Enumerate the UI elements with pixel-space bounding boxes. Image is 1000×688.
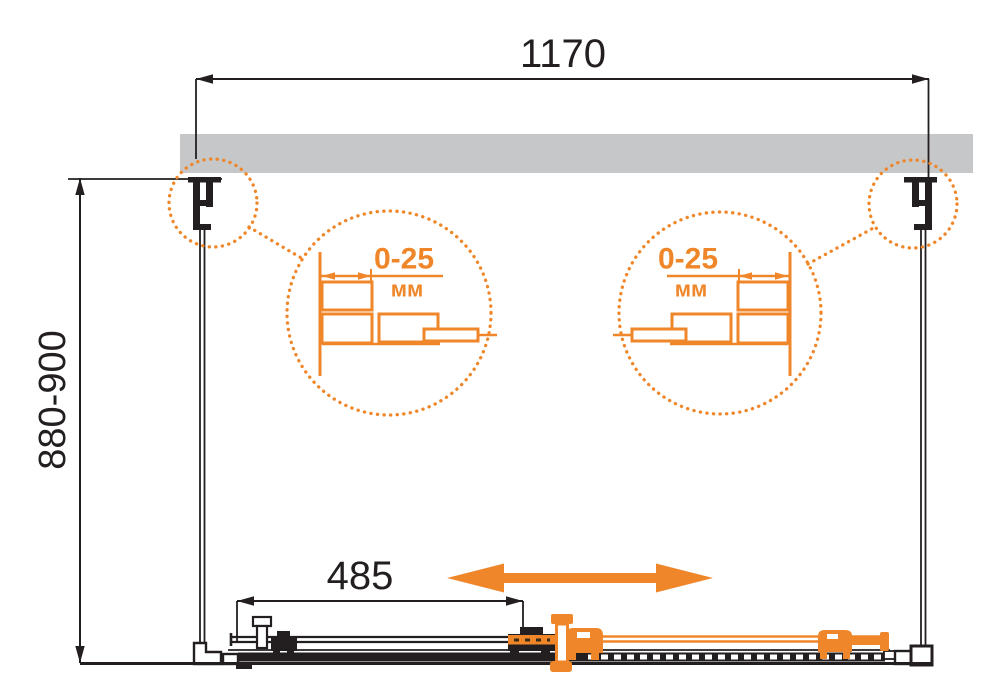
roller-body: [271, 637, 297, 651]
door-handle-stem: [557, 624, 568, 662]
profile-rung: [912, 200, 932, 206]
profile-foot: [914, 224, 928, 230]
profile-foot: [197, 224, 211, 230]
detail-drawing-right: 0-25 мм: [613, 243, 790, 377]
roller-wheel: [820, 652, 827, 659]
arrowhead-left-icon: [196, 74, 213, 83]
arrowhead-right-icon: [912, 74, 929, 83]
adjustment-range-label: 0-25: [374, 243, 434, 276]
detail-callout-right: 0-25 мм: [613, 160, 957, 414]
fixing-knob-stem: [257, 626, 267, 648]
arrow-shaft: [500, 573, 660, 583]
roller-detail: [827, 634, 838, 639]
arrowhead-right-icon: [656, 564, 713, 593]
wall-bar: [180, 134, 973, 173]
roller-wheel: [591, 653, 599, 660]
profile-tongue: [424, 329, 478, 341]
dimension-door-travel-label: 485: [327, 554, 394, 598]
plan-view-drawing: 1170 880-900 485: [0, 0, 1000, 688]
roller-wheel: [568, 653, 576, 660]
slide-direction-arrow: [447, 564, 713, 593]
bottom-track: [80, 643, 932, 669]
profile-flange: [904, 177, 937, 183]
track-end-step: [884, 651, 895, 659]
roller-body: [818, 630, 852, 652]
detail-drawing-left: 0-25 мм: [320, 243, 497, 377]
arrowhead-left-icon: [739, 272, 752, 279]
corner-bracket-left: [194, 643, 221, 664]
arrowhead-down-icon: [75, 646, 84, 663]
callout-connector: [808, 226, 877, 264]
dimension-height: 880-900: [32, 178, 222, 663]
profile-section-box: [322, 314, 372, 343]
roller-wheel: [843, 652, 850, 659]
unit-label: мм: [675, 277, 708, 302]
detail-callout-left: 0-25 мм: [169, 159, 497, 415]
arrowhead-left-icon: [322, 272, 335, 279]
roller-detail: [577, 632, 590, 638]
arrowhead-up-icon: [75, 178, 84, 195]
roller-bump: [520, 627, 543, 634]
arrowhead-right-icon: [775, 272, 788, 279]
profile-rung: [193, 200, 213, 206]
adjustment-range-label: 0-25: [658, 243, 718, 276]
profile-section-box: [322, 282, 372, 310]
roller-arm: [588, 636, 602, 646]
shower-enclosure-installation-drawing: 1170 880-900 485: [0, 0, 1000, 688]
track-bar: [238, 653, 585, 662]
profile-flange: [188, 177, 221, 183]
profile-tongue: [632, 329, 686, 341]
dimension-height-label: 880-900: [32, 330, 74, 469]
fixing-knob-cap: [253, 617, 271, 626]
fixed-panel: [231, 617, 555, 657]
arrowhead-left-icon: [237, 596, 254, 605]
arrowhead-right-icon: [506, 596, 523, 605]
profile-section-box: [738, 282, 788, 310]
arrowhead-right-icon: [358, 272, 371, 279]
arrowhead-left-icon: [447, 564, 504, 593]
roller-bump: [277, 631, 290, 637]
wall: [180, 134, 973, 173]
roller-arm: [852, 636, 882, 645]
profile-section-box: [738, 314, 788, 343]
dimension-width-label: 1170: [520, 32, 606, 76]
door-handle-foot: [550, 661, 572, 672]
callout-connector: [249, 227, 303, 259]
dimension-door-travel: 485: [237, 554, 523, 643]
unit-label: мм: [391, 277, 424, 302]
